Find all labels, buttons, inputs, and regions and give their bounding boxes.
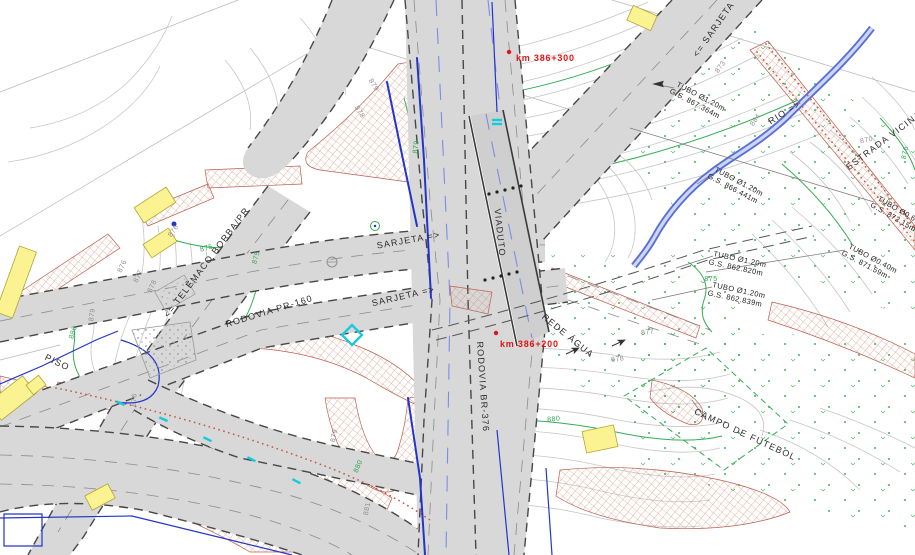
- svg-text:876: 876: [130, 393, 138, 407]
- building: [582, 425, 618, 453]
- svg-text:880: 880: [547, 415, 561, 423]
- station-dot-200: [494, 331, 498, 335]
- svg-text:876: 876: [167, 224, 180, 239]
- building: [627, 5, 657, 30]
- svg-text:875: 875: [704, 276, 717, 283]
- cad-plan-viewport: km 386+300 km 386+200 SARJETA => SARJETA…: [0, 0, 915, 555]
- station-label-200: km 386+200: [500, 339, 559, 349]
- label-piso: PISO: [43, 352, 71, 373]
- station-dot-300: [507, 50, 511, 54]
- svg-text:879: 879: [412, 140, 420, 154]
- svg-text:876: 876: [117, 259, 129, 274]
- station-label-300: km 386+300: [516, 53, 575, 63]
- plan-drawing: km 386+300 km 386+200 SARJETA => SARJETA…: [0, 0, 915, 555]
